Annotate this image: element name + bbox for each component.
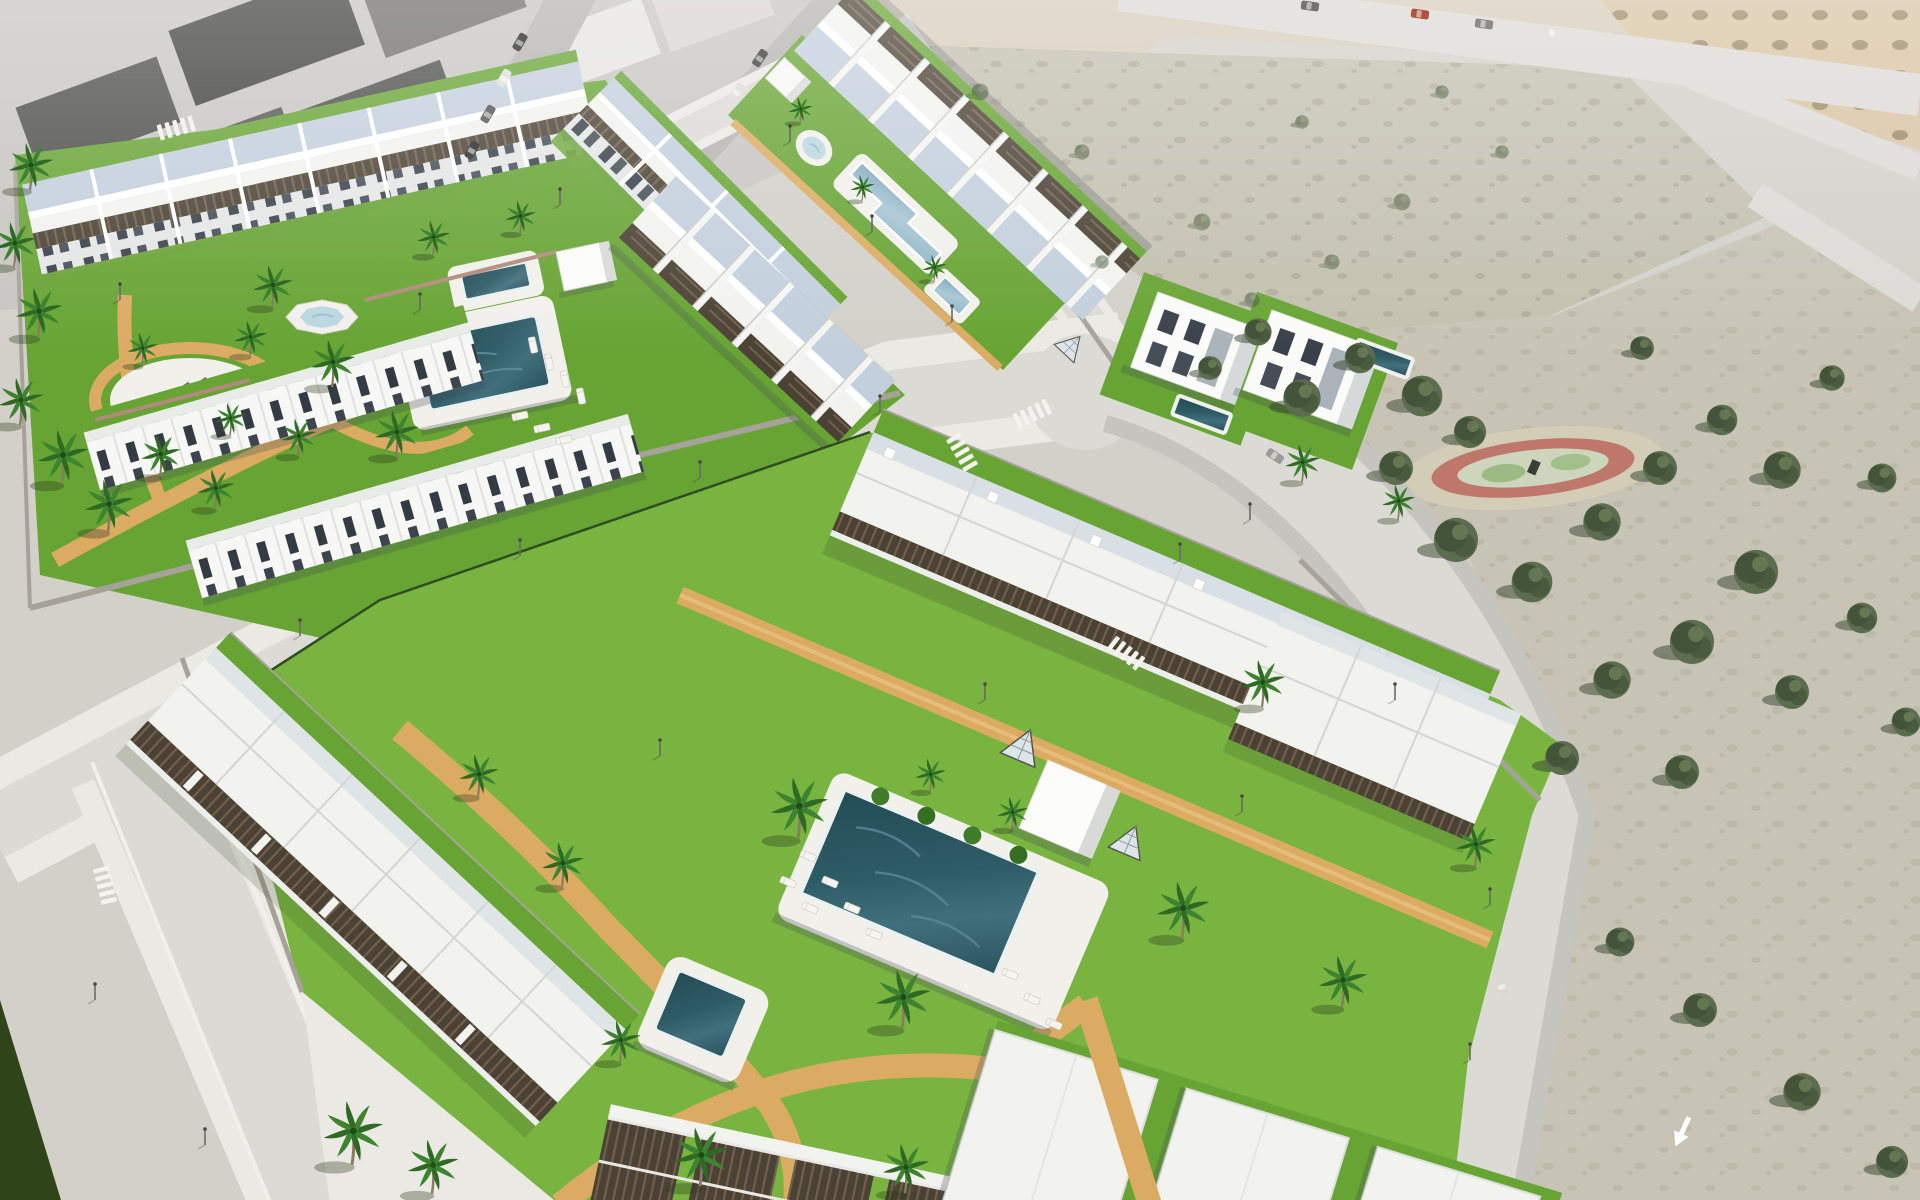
distance-haze xyxy=(0,0,1920,360)
render-canvas xyxy=(0,0,1920,1200)
aerial-render: Bird's-eye 3D render of a new Mediterran… xyxy=(0,0,1920,1200)
